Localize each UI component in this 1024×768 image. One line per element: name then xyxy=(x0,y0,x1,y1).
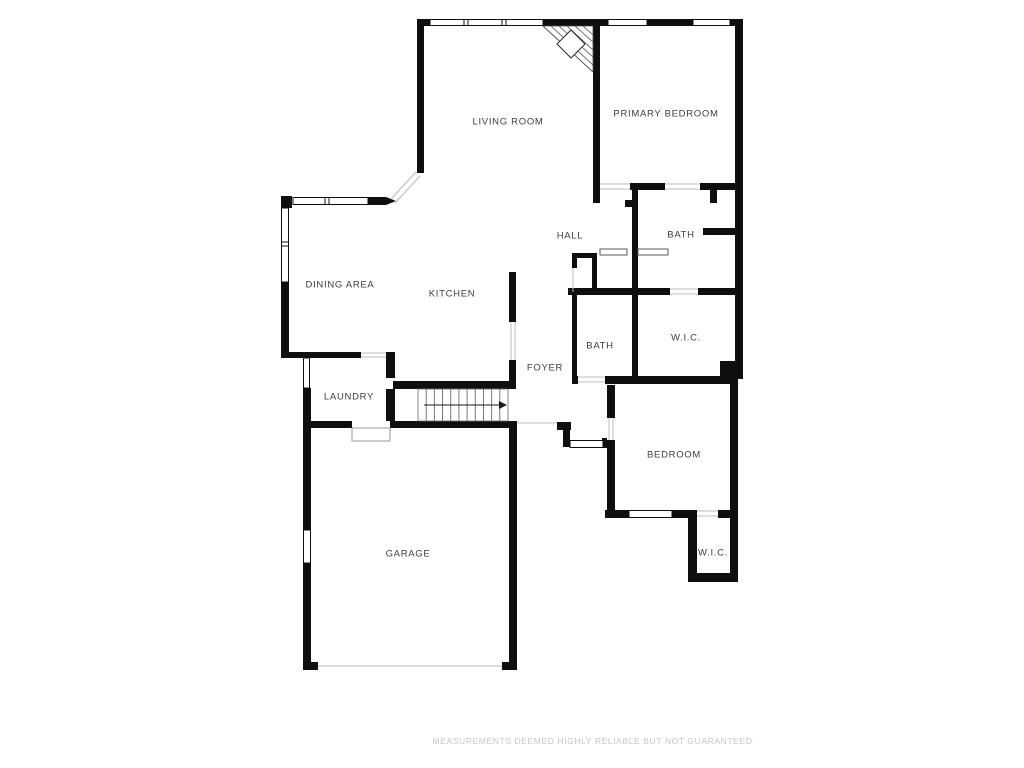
bath-vanity xyxy=(638,249,668,255)
floor-plan-drawing xyxy=(0,0,1024,768)
door-openings-layer xyxy=(318,184,718,666)
hall-shelf xyxy=(600,249,627,255)
garage-step xyxy=(352,428,390,441)
stairs xyxy=(418,389,508,421)
disclaimer-text: MEASUREMENTS DEEMED HIGHLY RELIABLE BUT … xyxy=(433,736,756,746)
flue-block xyxy=(720,361,739,377)
fireplace-icon xyxy=(543,26,593,72)
floor-plan-page: LIVING ROOMPRIMARY BEDROOMHALLBATHDINING… xyxy=(0,0,1024,768)
angled-opening xyxy=(391,172,420,203)
walls-layer xyxy=(281,19,743,670)
